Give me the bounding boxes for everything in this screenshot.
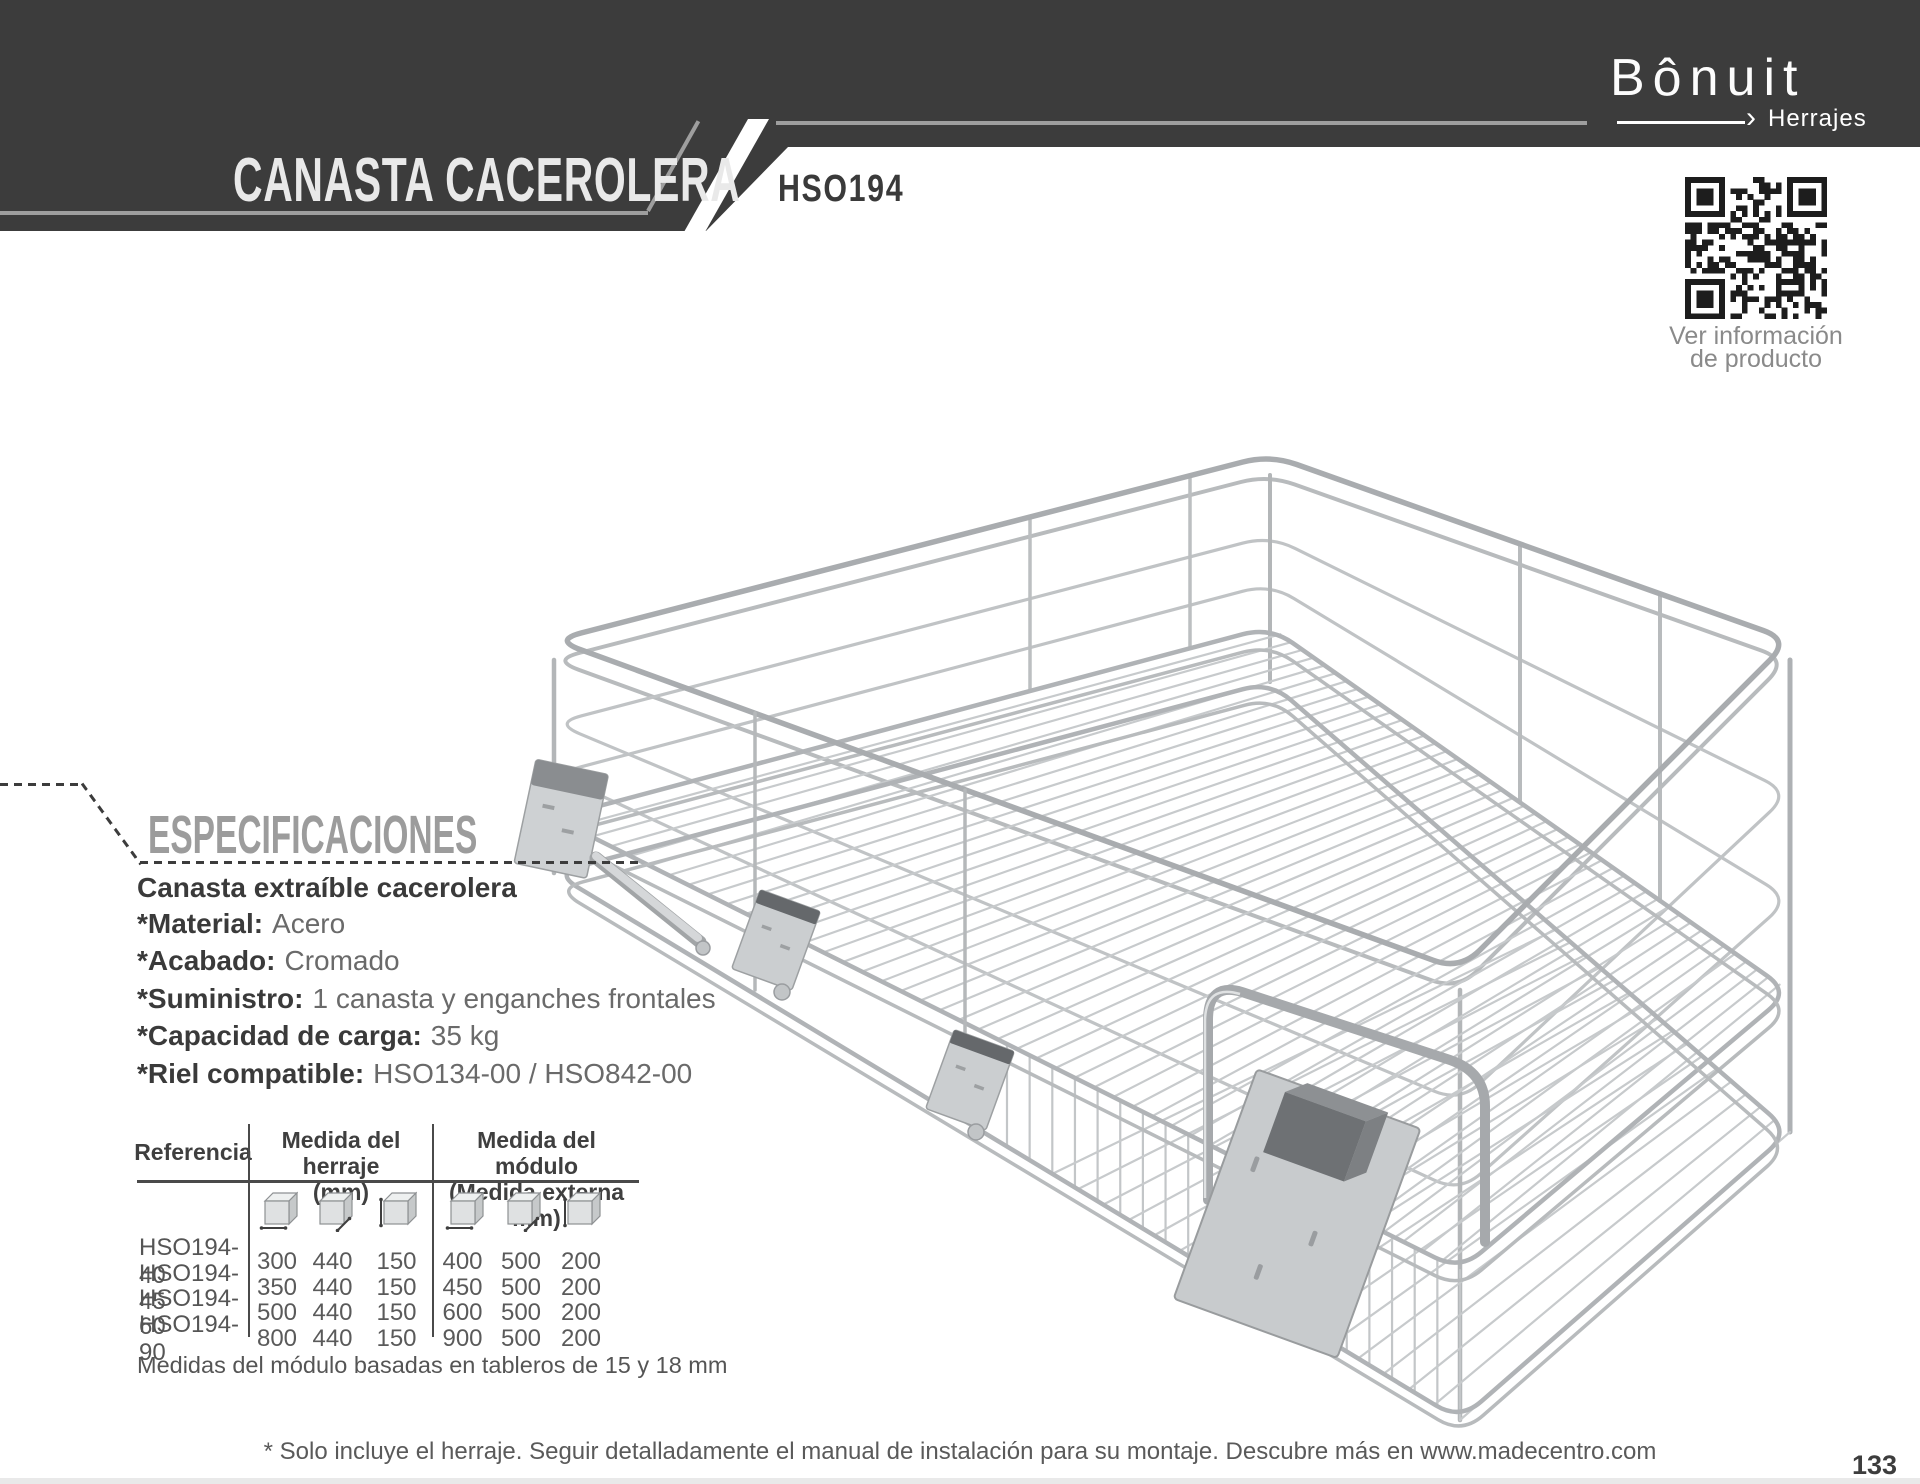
table-cell-value: 440 (305, 1248, 360, 1276)
qr-caption: de producto (1640, 347, 1872, 372)
spec-item-value: 1 canasta y enganches frontales (312, 983, 715, 1015)
table-cell-value: 350 (249, 1274, 305, 1302)
spec-item: *Capacidad de carga:35 kg (137, 1018, 697, 1056)
table-cell-value: 500 (492, 1299, 550, 1327)
page-number: 133 (1852, 1450, 1897, 1481)
table-note: Medidas del módulo basadas en tableros d… (137, 1352, 727, 1379)
table-row: HSO194-40300440150400500200 (137, 1234, 639, 1260)
table-cell-value: 600 (433, 1299, 492, 1327)
spec-item-value: Acero (272, 908, 345, 940)
spec-item-label: *Riel compatible: (137, 1058, 364, 1090)
table-header-referencia: Referencia (137, 1124, 249, 1180)
qr-code-icon (1685, 177, 1827, 319)
table-cell-value: 150 (360, 1274, 433, 1302)
table-header-rule (137, 1180, 639, 1183)
table-cell-value: 500 (492, 1248, 550, 1276)
table-cell-value: 200 (550, 1248, 612, 1276)
table-cell-value: 440 (305, 1325, 360, 1353)
brand-logo-line (1617, 121, 1745, 124)
table-cell-value: 500 (492, 1325, 550, 1353)
brand-tagline: Herrajes (1768, 107, 1867, 131)
table-cell-value: 500 (249, 1299, 305, 1327)
table-cell-value: 200 (550, 1325, 612, 1353)
catalog-page: CANASTA CACEROLERA HSO194 Bônuit › Herra… (0, 0, 1920, 1484)
table-cell-value: 440 (305, 1274, 360, 1302)
table-cell-value: 300 (249, 1248, 305, 1276)
spec-item-label: *Capacidad de carga: (137, 1020, 422, 1052)
page-bottom-edge (0, 1478, 1920, 1484)
footer-disclaimer: * Solo incluye el herraje. Seguir detall… (0, 1438, 1920, 1466)
spec-item: *Riel compatible:HSO134-00 / HSO842-00 (137, 1055, 697, 1093)
spec-item-value: Cromado (284, 945, 399, 977)
cube-width-icon (258, 1186, 298, 1232)
brand-logo: Bônuit (1610, 52, 1805, 104)
spec-item-value: 35 kg (431, 1020, 500, 1052)
cube-height-icon (377, 1186, 417, 1232)
table-body: HSO194-40300440150400500200HSO194-453504… (137, 1234, 639, 1336)
cube-height-icon (561, 1186, 601, 1232)
spec-list: *Material:Acero*Acabado:Cromado*Suminist… (137, 905, 697, 1093)
spec-item-value: HSO134-00 / HSO842-00 (373, 1058, 692, 1090)
spec-leader-dash (0, 783, 84, 786)
specifications-heading: ESPECIFICACIONES (148, 808, 477, 862)
spec-item: *Acabado:Cromado (137, 943, 697, 981)
cube-depth-icon (313, 1186, 353, 1232)
table-cell-value: 150 (360, 1299, 433, 1327)
table-cell-value: 800 (249, 1325, 305, 1353)
table-cell-value: 150 (360, 1325, 433, 1353)
table-cell-value: 400 (433, 1248, 492, 1276)
cube-width-icon (444, 1186, 484, 1232)
spec-item-label: *Acabado: (137, 945, 275, 977)
spec-item-label: *Suministro: (137, 983, 303, 1015)
page-title: CANASTA CACEROLERA (233, 150, 740, 212)
table-cell-value: 440 (305, 1299, 360, 1327)
table-cell-value: 200 (550, 1274, 612, 1302)
spec-item: *Material:Acero (137, 905, 697, 943)
spec-item-label: *Material: (137, 908, 263, 940)
table-cell-value: 900 (433, 1325, 492, 1353)
table-cell-value: 200 (550, 1299, 612, 1327)
table-cell-value: 450 (433, 1274, 492, 1302)
spec-product-name: Canasta extraíble cacerolera (137, 872, 517, 904)
table-cell-value: 500 (492, 1274, 550, 1302)
banner-accent-line-right (776, 121, 1587, 125)
table-cell-value: 150 (360, 1248, 433, 1276)
spec-leader-dash-diagonal (81, 783, 142, 866)
arrow-right-icon: › (1746, 103, 1756, 133)
product-code: HSO194 (778, 170, 904, 208)
spec-item: *Suministro:1 canasta y enganches fronta… (137, 980, 697, 1018)
dimensions-table: Referencia Medida del herraje (mm) Medid… (137, 1124, 639, 1374)
cube-depth-icon (501, 1186, 541, 1232)
